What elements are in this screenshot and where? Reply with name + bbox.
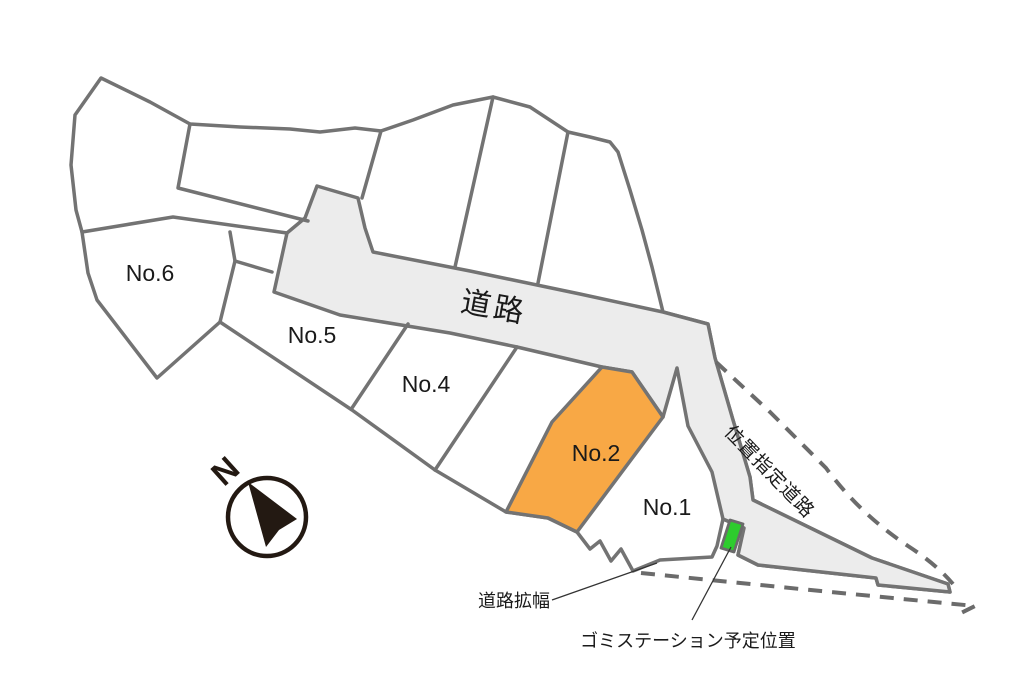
compass: N bbox=[204, 449, 306, 556]
site-plan-drawing: N No.6 No.5 No.4 No.2 No.1 道路 位置指定道路 道路拡… bbox=[0, 0, 1024, 683]
plot-label-no4: No.4 bbox=[402, 371, 451, 397]
compass-needle bbox=[248, 482, 297, 547]
road-widening-label: 道路拡幅 bbox=[478, 591, 550, 611]
road-widening-leader-line bbox=[552, 563, 657, 600]
plot-label-no2: No.2 bbox=[572, 440, 621, 466]
site-plan-page: N No.6 No.5 No.4 No.2 No.1 道路 位置指定道路 道路拡… bbox=[0, 0, 1024, 683]
garbage-station-label: ゴミステーション予定位置 bbox=[580, 631, 796, 651]
plot-label-no1: No.1 bbox=[643, 494, 692, 520]
plot-label-no6: No.6 bbox=[126, 260, 175, 286]
plot-label-no5: No.5 bbox=[288, 322, 337, 348]
